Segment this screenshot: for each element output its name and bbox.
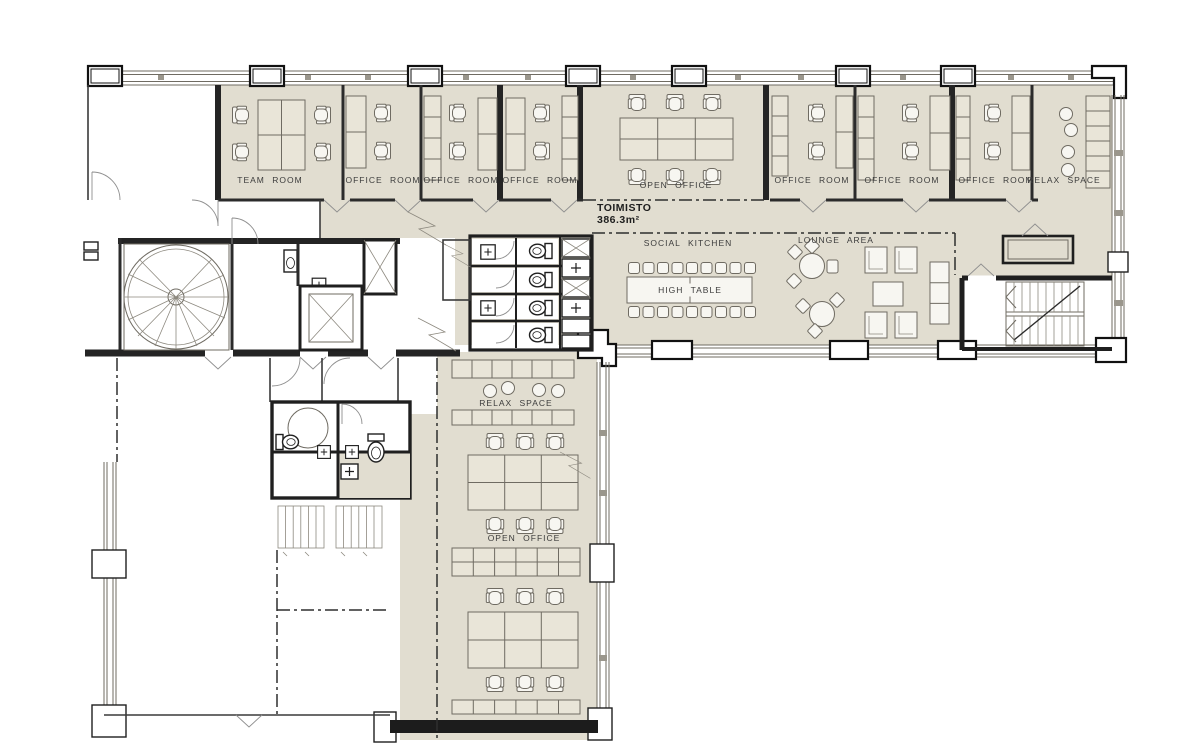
room-label-team-room: TEAM ROOM — [237, 175, 302, 185]
room-label-open-office-lower: OPEN OFFICE — [488, 533, 561, 543]
room-label-office-5: OFFICE ROOM — [865, 175, 940, 185]
room-label-office-3: OFFICE ROOM — [503, 175, 578, 185]
room-label-office-2: OFFICE ROOM — [424, 175, 499, 185]
area-name: TOIMISTO — [597, 202, 651, 214]
floor-plan-page: TEAM ROOM OFFICE ROOM OFFICE ROOM OFFICE… — [0, 0, 1200, 750]
area-value: 386.3m² — [597, 214, 640, 226]
room-label-relax-upper: RELAX SPACE — [1027, 175, 1100, 185]
room-label-lounge-area: LOUNGE AREA — [798, 235, 874, 245]
room-label-office-6: OFFICE ROOM — [959, 175, 1034, 185]
elevator-shaft-1 — [300, 286, 362, 350]
room-label-office-4: OFFICE ROOM — [775, 175, 850, 185]
elevator-shaft-2 — [364, 240, 396, 294]
room-label-relax-lower: RELAX SPACE — [479, 398, 552, 408]
high-table-chairs-top — [629, 263, 756, 274]
open-office-upper-furniture — [620, 95, 733, 185]
room-label-open-office: OPEN OFFICE — [640, 180, 713, 190]
high-table-chairs-bottom — [629, 307, 756, 318]
wc-block-lower — [270, 358, 410, 498]
stairs-lower — [278, 506, 382, 556]
floor-plan-svg: TEAM ROOM OFFICE ROOM OFFICE ROOM OFFICE… — [0, 0, 1200, 750]
bottom-wall — [390, 720, 598, 733]
sofa — [930, 262, 949, 324]
room-label-high-table: HIGH TABLE — [658, 285, 722, 295]
room-label-social-kitchen: SOCIAL KITCHEN — [644, 238, 733, 248]
room-label-office-1: OFFICE ROOM — [346, 175, 421, 185]
